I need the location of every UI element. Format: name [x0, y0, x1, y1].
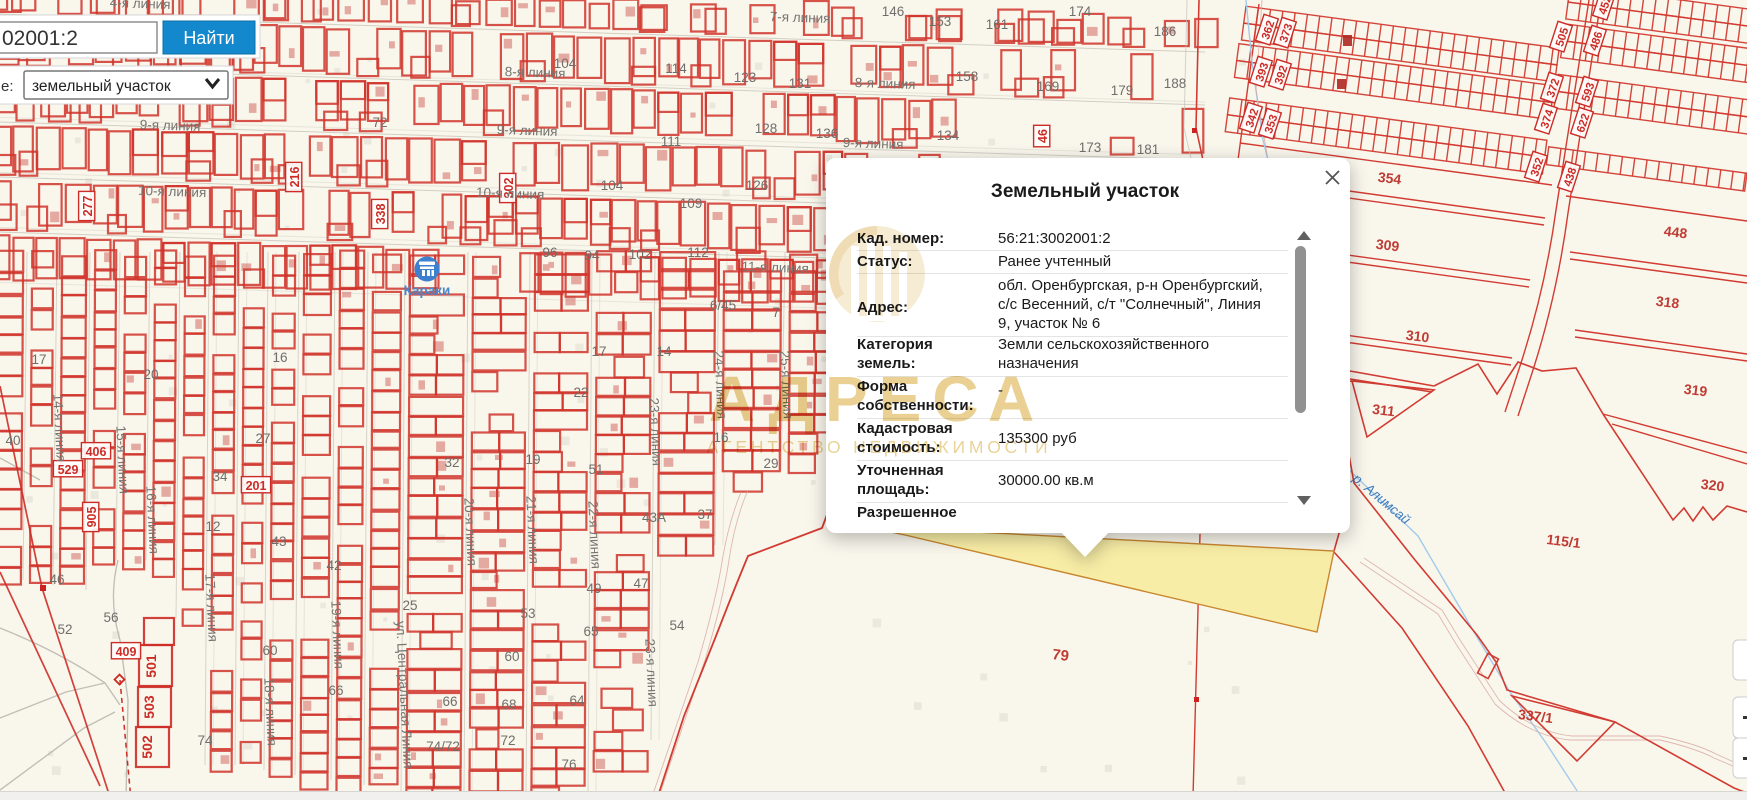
- svg-text:Найти: Найти: [183, 28, 234, 48]
- svg-text:19: 19: [525, 452, 540, 467]
- svg-text:60: 60: [262, 643, 277, 658]
- svg-text:409: 409: [116, 645, 137, 659]
- svg-text:111: 111: [661, 134, 682, 149]
- svg-text:72: 72: [372, 115, 387, 130]
- svg-text:54: 54: [669, 618, 685, 633]
- svg-text:102: 102: [629, 247, 652, 262]
- svg-text:318: 318: [1655, 293, 1680, 312]
- svg-text:43: 43: [271, 534, 286, 549]
- svg-text:905: 905: [85, 507, 99, 528]
- svg-text:12: 12: [205, 519, 220, 534]
- svg-text:02001:2: 02001:2: [2, 27, 78, 50]
- svg-text:128: 128: [755, 121, 778, 136]
- svg-text:501: 501: [143, 654, 159, 678]
- svg-text:8-я линия: 8-я линия: [855, 75, 916, 92]
- svg-text:11-я линия: 11-я линия: [741, 259, 809, 276]
- svg-text:Ранее учтенный: Ранее учтенный: [998, 253, 1111, 270]
- svg-text:8-я линия: 8-я линия: [505, 64, 566, 81]
- svg-text:56: 56: [103, 610, 118, 625]
- svg-text:406: 406: [86, 445, 107, 459]
- svg-text:46: 46: [1036, 129, 1050, 143]
- svg-text:площадь:: площадь:: [857, 481, 929, 498]
- svg-text:186: 186: [1154, 24, 1177, 39]
- svg-text:22: 22: [573, 385, 588, 400]
- svg-text:Земли сельскохозяйственного: Земли сельскохозяйственного: [998, 336, 1209, 353]
- svg-text:319: 319: [1683, 381, 1708, 400]
- svg-text:49: 49: [586, 581, 601, 596]
- svg-text:72: 72: [500, 733, 515, 748]
- svg-text:9-я линия: 9-я линия: [843, 135, 904, 152]
- svg-text:188: 188: [1164, 76, 1187, 91]
- svg-text:131: 131: [789, 76, 812, 91]
- svg-text:Уточненная: Уточненная: [857, 462, 944, 479]
- svg-text:158: 158: [956, 69, 979, 84]
- svg-text:74/72: 74/72: [426, 739, 460, 754]
- svg-text:65: 65: [583, 624, 598, 639]
- svg-text:79: 79: [1051, 646, 1070, 665]
- svg-text:64: 64: [569, 693, 585, 708]
- svg-text:104: 104: [601, 178, 624, 193]
- svg-text:16: 16: [272, 350, 287, 365]
- svg-text:7: 7: [772, 305, 780, 320]
- svg-text:е:: е:: [1, 78, 14, 95]
- svg-text:354: 354: [1377, 169, 1402, 188]
- svg-text:56:21:3002001:2: 56:21:3002001:2: [998, 230, 1111, 247]
- svg-text:146: 146: [882, 4, 905, 19]
- svg-text:136: 136: [816, 126, 839, 141]
- svg-text:17: 17: [591, 344, 606, 359]
- svg-text:134: 134: [937, 128, 960, 143]
- svg-text:448: 448: [1663, 223, 1688, 242]
- svg-text:126: 126: [746, 178, 769, 193]
- svg-text:32: 32: [444, 455, 459, 470]
- svg-text:4-я линия: 4-я линия: [110, 0, 171, 12]
- svg-text:66: 66: [442, 694, 457, 709]
- svg-text:174: 174: [1069, 4, 1092, 19]
- svg-text:10-я линия: 10-я линия: [138, 183, 207, 200]
- svg-text:153: 153: [929, 14, 952, 29]
- svg-text:529: 529: [58, 463, 79, 477]
- svg-text:503: 503: [141, 695, 157, 719]
- svg-text:96: 96: [542, 245, 557, 260]
- svg-text:25: 25: [402, 598, 417, 613]
- svg-text:51: 51: [588, 462, 603, 477]
- svg-text:109: 109: [680, 196, 703, 211]
- svg-text:320: 320: [1700, 476, 1725, 495]
- svg-text:6/45: 6/45: [710, 298, 736, 313]
- svg-text:161: 161: [986, 17, 1009, 32]
- svg-text:20: 20: [143, 367, 158, 382]
- svg-text:Категория: Категория: [857, 336, 933, 353]
- svg-text:201: 201: [246, 479, 267, 493]
- svg-text:40: 40: [5, 433, 20, 448]
- svg-text:114: 114: [665, 61, 687, 76]
- svg-text:169: 169: [1037, 79, 1060, 94]
- svg-text:земельный участок: земельный участок: [32, 78, 171, 95]
- svg-text:14: 14: [656, 344, 672, 359]
- svg-text:27: 27: [255, 431, 270, 446]
- svg-text:10-я линия: 10-я линия: [476, 185, 545, 202]
- svg-text:9, участок № 6: 9, участок № 6: [998, 315, 1100, 332]
- svg-text:42: 42: [326, 558, 341, 573]
- svg-text:7-я линия: 7-я линия: [770, 9, 831, 26]
- svg-text:АГЕНТСТВО НЕДВИЖИМОСТИ: АГЕНТСТВО НЕДВИЖИМОСТИ: [707, 437, 1052, 457]
- svg-text:АДРЕСА: АДРЕСА: [709, 363, 1045, 435]
- svg-text:52: 52: [57, 622, 72, 637]
- svg-text:Разрешенное: Разрешенное: [857, 504, 957, 521]
- svg-text:216: 216: [288, 167, 302, 188]
- svg-text:29: 29: [763, 456, 778, 471]
- svg-text:309: 309: [1375, 236, 1400, 255]
- svg-text:обл. Оренбургская, р-н Оренбур: обл. Оренбургская, р-н Оренбургский,: [998, 277, 1263, 294]
- svg-text:Караки: Караки: [404, 283, 451, 298]
- svg-text:37: 37: [697, 507, 712, 522]
- svg-text:173: 173: [1079, 140, 1102, 155]
- svg-text:181: 181: [1137, 142, 1160, 157]
- svg-text:277: 277: [81, 196, 95, 217]
- svg-text:43А: 43А: [642, 510, 666, 525]
- svg-text:30000.00 кв.м: 30000.00 кв.м: [998, 472, 1094, 489]
- svg-text:179: 179: [1111, 83, 1134, 98]
- svg-text:112: 112: [687, 245, 709, 260]
- svg-text:47: 47: [633, 576, 648, 591]
- svg-text:502: 502: [139, 735, 155, 759]
- svg-text:Земельный участок: Земельный участок: [991, 181, 1180, 202]
- svg-text:с/с Весенний, с/т "Солнечный",: с/с Весенний, с/т "Солнечный", Линия: [998, 296, 1261, 313]
- svg-text:34: 34: [212, 469, 228, 484]
- svg-text:123: 123: [734, 70, 757, 85]
- svg-text:74: 74: [197, 733, 213, 748]
- svg-text:60: 60: [504, 649, 519, 664]
- svg-text:338: 338: [374, 204, 388, 225]
- svg-text:17: 17: [31, 352, 46, 367]
- svg-text:46: 46: [49, 572, 64, 587]
- svg-text:9-я линия: 9-я линия: [497, 122, 558, 139]
- svg-text:310: 310: [1405, 327, 1430, 346]
- svg-text:66: 66: [328, 683, 343, 698]
- svg-text:76: 76: [561, 757, 576, 772]
- svg-text:68: 68: [501, 697, 516, 712]
- svg-text:9-я линия: 9-я линия: [140, 117, 201, 134]
- svg-text:53: 53: [520, 606, 535, 621]
- svg-text:94: 94: [584, 248, 600, 263]
- svg-text:311: 311: [1371, 401, 1396, 420]
